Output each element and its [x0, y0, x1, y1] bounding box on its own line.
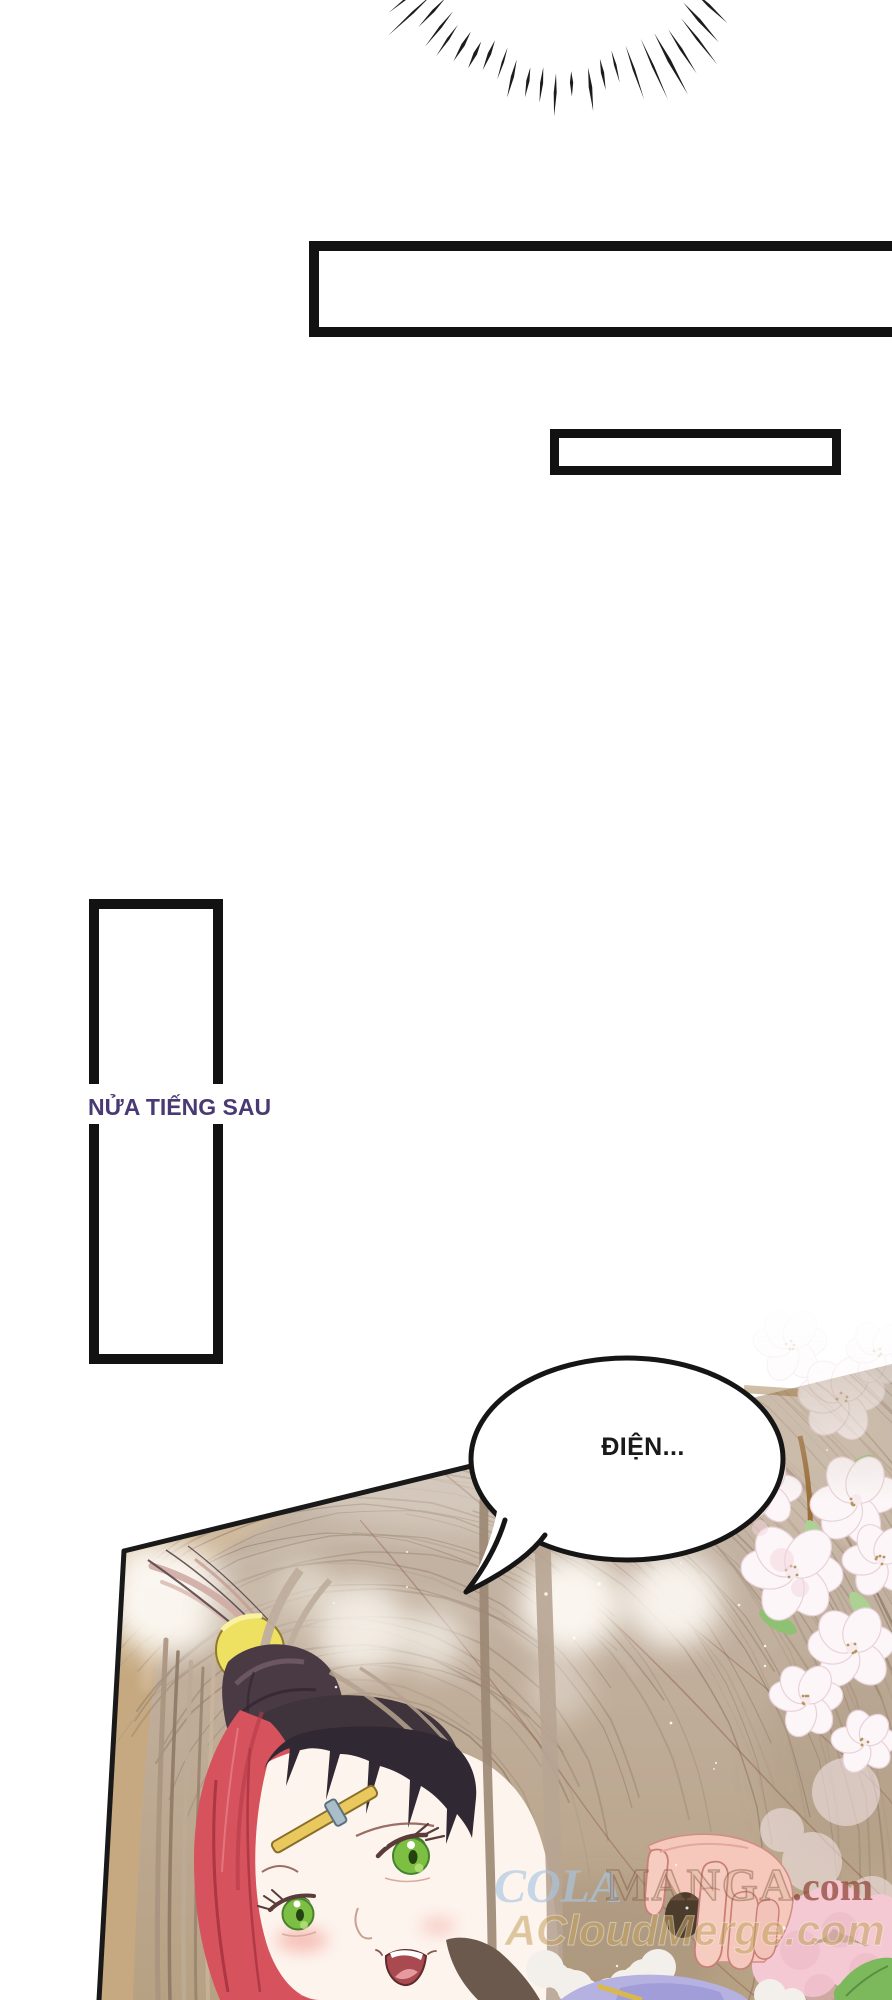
svg-text:.com: .com	[792, 1864, 873, 1909]
svg-text:ĐIỆN...: ĐIỆN...	[601, 1431, 684, 1461]
svg-text:COLA: COLA	[494, 1860, 622, 1913]
svg-text:ACloudMerge.com: ACloudMerge.com	[504, 1907, 885, 1955]
svg-text:MANGA: MANGA	[606, 1859, 795, 1910]
